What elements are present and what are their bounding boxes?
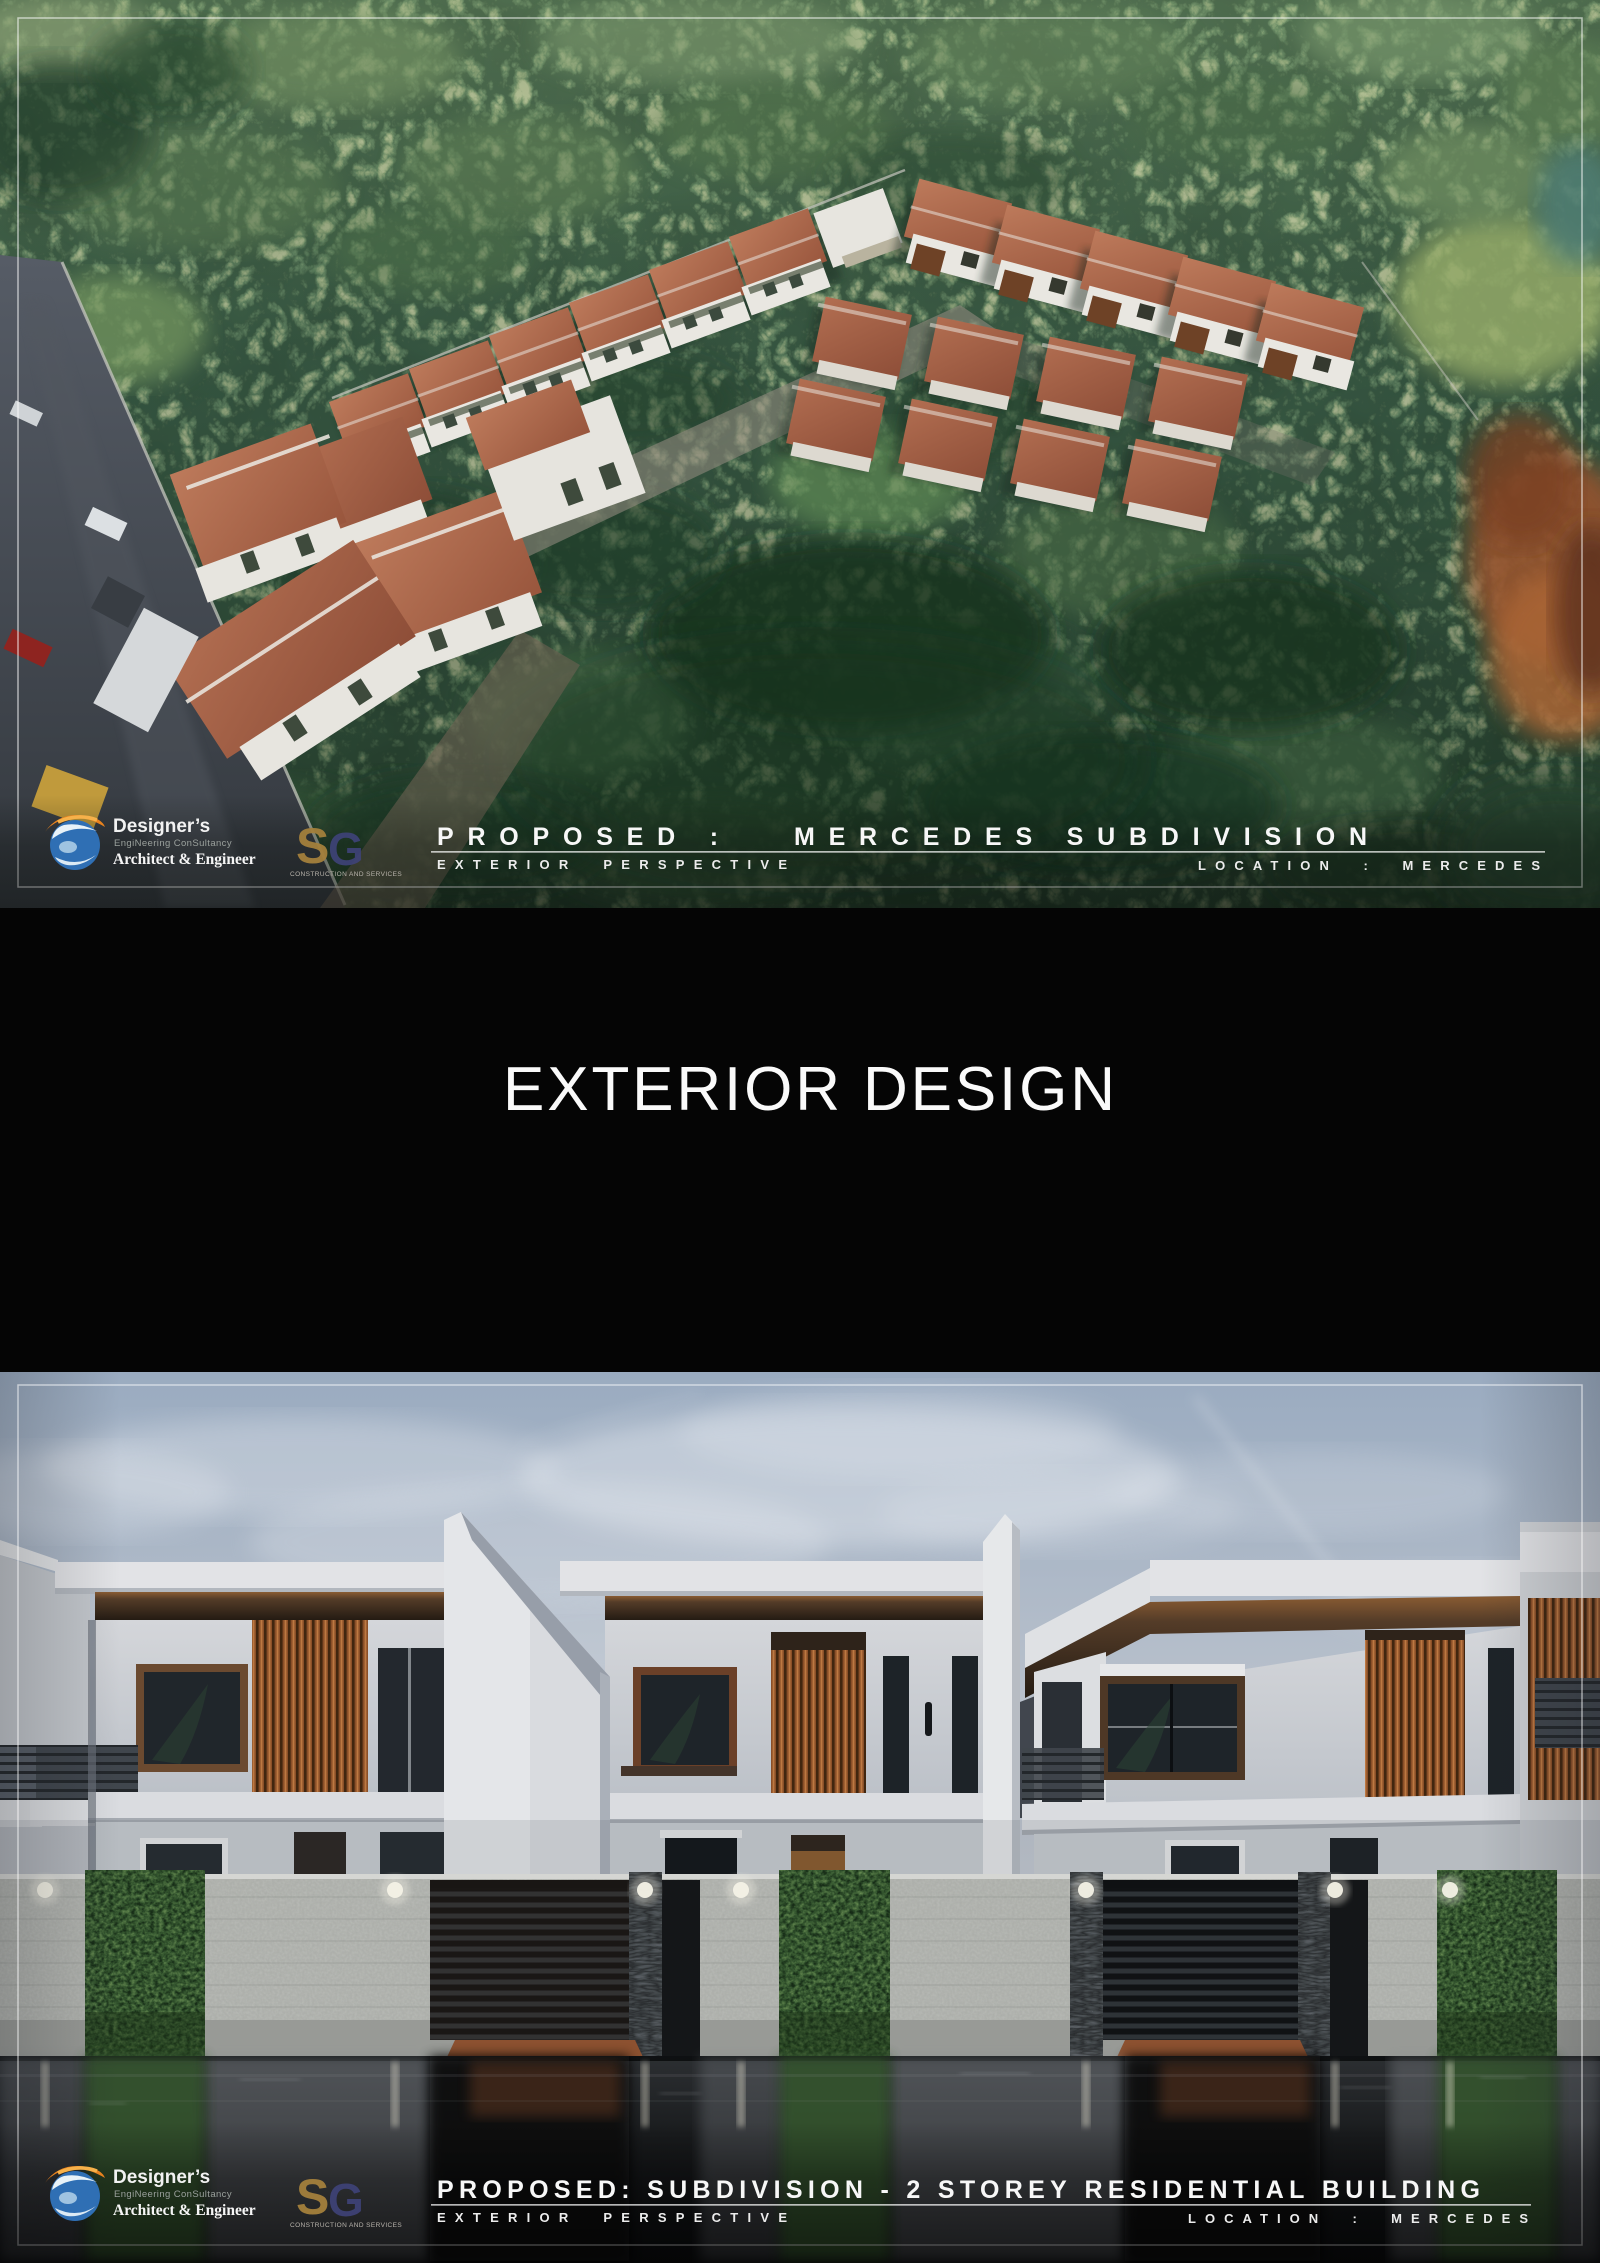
- svg-text:EXTERIOR DESIGN: EXTERIOR DESIGN: [503, 1055, 1115, 1124]
- svg-text:PROPOSED : MERCEDES SUBDIVIS: PROPOSED : MERCEDES SUBDIVISION: [437, 823, 1367, 851]
- svg-text:Architect & Engineer: Architect & Engineer: [113, 851, 256, 868]
- svg-text:CONSTRUCTION AND SERVICES: CONSTRUCTION AND SERVICES: [290, 871, 402, 878]
- svg-text:S: S: [296, 2169, 329, 2225]
- svg-text:G: G: [328, 2174, 364, 2226]
- svg-text:EngiNeering ConSultancy: EngiNeering ConSultancy: [114, 838, 232, 849]
- svg-text:Architect & Engineer: Architect & Engineer: [113, 2202, 256, 2219]
- svg-text:CONSTRUCTION AND SERVICES: CONSTRUCTION AND SERVICES: [290, 2222, 402, 2229]
- svg-text:S: S: [296, 818, 329, 874]
- svg-text:Designer’s: Designer’s: [113, 816, 210, 837]
- svg-text:Designer’s: Designer’s: [113, 2167, 210, 2188]
- svg-text:EngiNeering ConSultancy: EngiNeering ConSultancy: [114, 2189, 232, 2200]
- svg-text:G: G: [328, 823, 364, 875]
